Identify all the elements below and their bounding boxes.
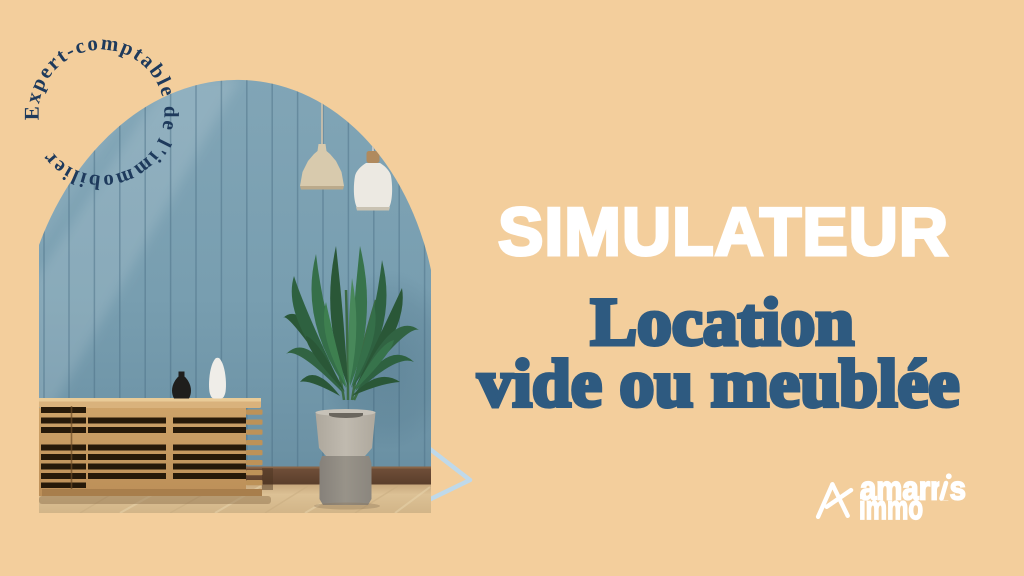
svg-text:vide ou meublée: vide ou meublée [478, 345, 960, 421]
svg-text:SIMULATEUR: SIMULATEUR [498, 194, 949, 270]
svg-text:immo: immo [859, 489, 923, 526]
